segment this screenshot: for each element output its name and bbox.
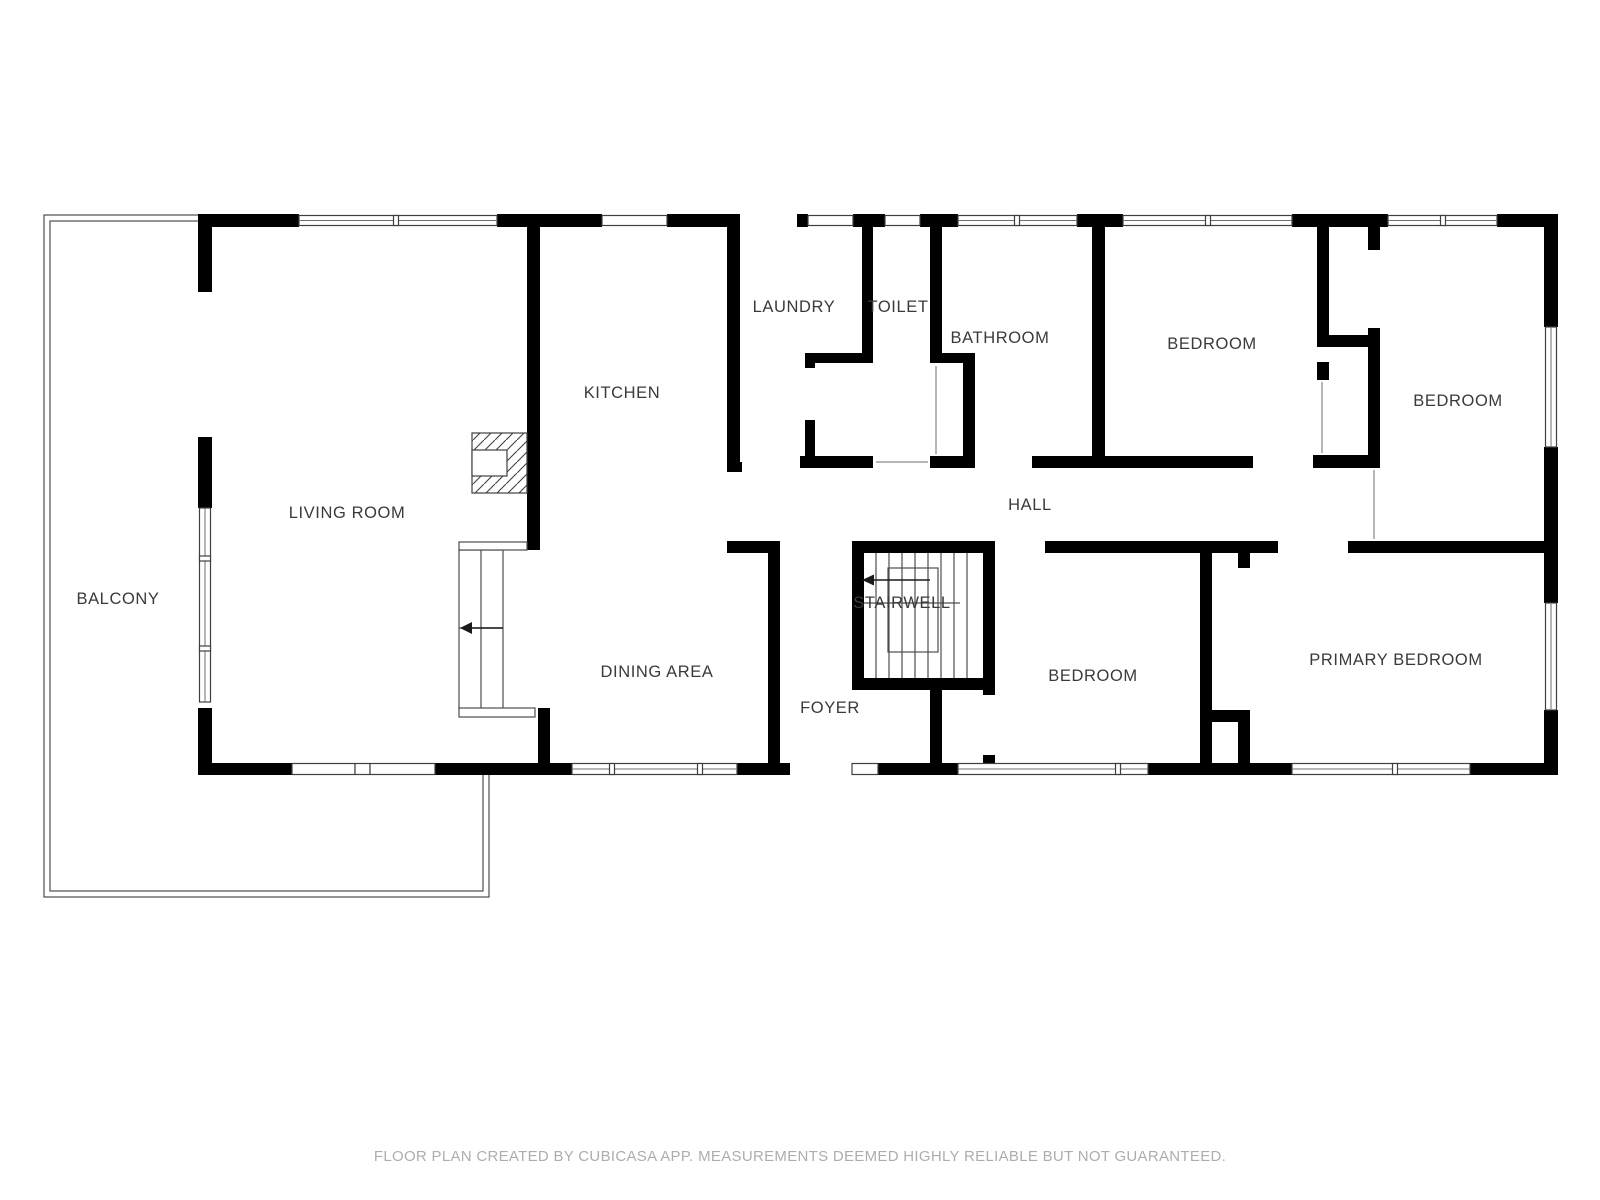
fireplace (472, 433, 527, 493)
room-label-bedroom-middle: BEDROOM (1048, 667, 1137, 685)
floor-plan-canvas: BALCONY LIVING ROOM KITCHEN DINING AREA … (0, 0, 1600, 1200)
room-label-hall: HALL (1008, 496, 1052, 514)
room-label-balcony: BALCONY (76, 590, 159, 608)
fireplace-opening (472, 450, 507, 476)
room-label-foyer: FOYER (800, 699, 860, 717)
building-footprint (198, 212, 1558, 775)
room-label-kitchen: KITCHEN (584, 384, 661, 402)
room-label-bedroom-right: BEDROOM (1413, 392, 1502, 410)
room-label-bathroom: BATHROOM (951, 329, 1050, 347)
room-label-stairwell: STAIRWELL (853, 594, 950, 612)
room-label-toilet: TOILET (867, 298, 928, 316)
room-label-bedroom-top: BEDROOM (1167, 335, 1256, 353)
floor-plan-page: BALCONY LIVING ROOM KITCHEN DINING AREA … (0, 0, 1600, 1200)
footer-disclaimer: FLOOR PLAN CREATED BY CUBICASA APP. MEAS… (0, 1148, 1600, 1165)
room-label-living-room: LIVING ROOM (289, 504, 406, 522)
room-label-primary-bedroom: PRIMARY BEDROOM (1309, 651, 1482, 669)
room-label-laundry: LAUNDRY (753, 298, 836, 316)
room-label-dining-area: DINING AREA (601, 663, 714, 681)
